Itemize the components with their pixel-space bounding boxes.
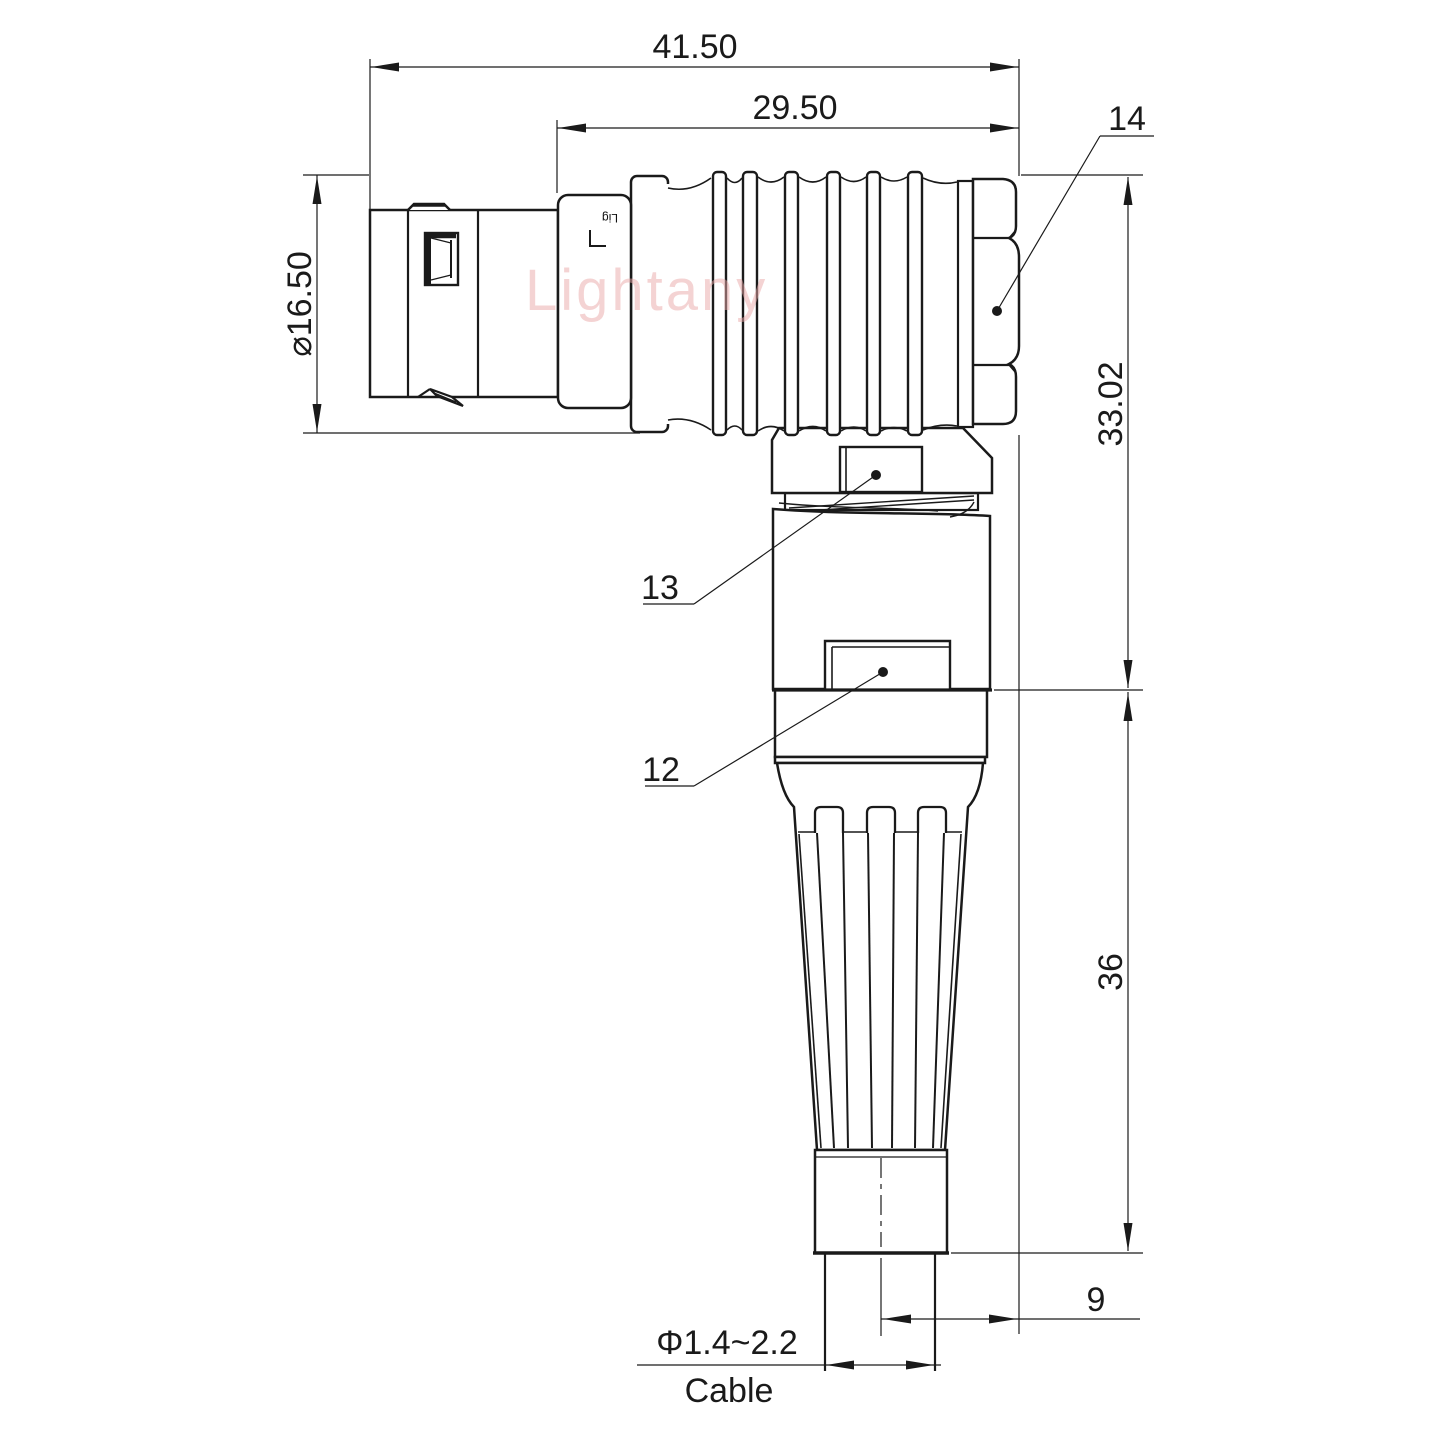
- watermark-text: Lightany: [525, 258, 768, 323]
- dim-cable-range-label: Φ1.4~2.2: [656, 1324, 798, 1362]
- connector-drawing-canvas: Lig 41.50 29.50 ⌀16.50 33.02: [0, 0, 1440, 1440]
- dim-overall-length-label: 41.50: [652, 28, 737, 66]
- dim-axis-height-label: 33.02: [1092, 361, 1130, 446]
- bayonet-window: [425, 233, 458, 285]
- dim-boot-length-label: 36: [1092, 953, 1130, 991]
- elbow-body: [772, 428, 992, 1371]
- callout-13-label: 13: [641, 569, 679, 607]
- callout-12-label: 12: [642, 751, 680, 789]
- hex-backnut: [973, 179, 1019, 424]
- callout-14-label: 14: [1108, 100, 1146, 138]
- cable-lines: [825, 1254, 935, 1371]
- dim-offset-label: 9: [1087, 1281, 1106, 1319]
- technical-drawing-page: Lig 41.50 29.50 ⌀16.50 33.02: [0, 0, 1440, 1440]
- dim-rear-length-label: 29.50: [752, 89, 837, 127]
- dim-shell-diameter-label: ⌀16.50: [281, 251, 319, 357]
- dimension-cable: Φ1.4~2.2 Cable: [637, 1324, 941, 1410]
- cable-label: Cable: [685, 1372, 774, 1410]
- shell-marking-text: Lig: [602, 211, 618, 225]
